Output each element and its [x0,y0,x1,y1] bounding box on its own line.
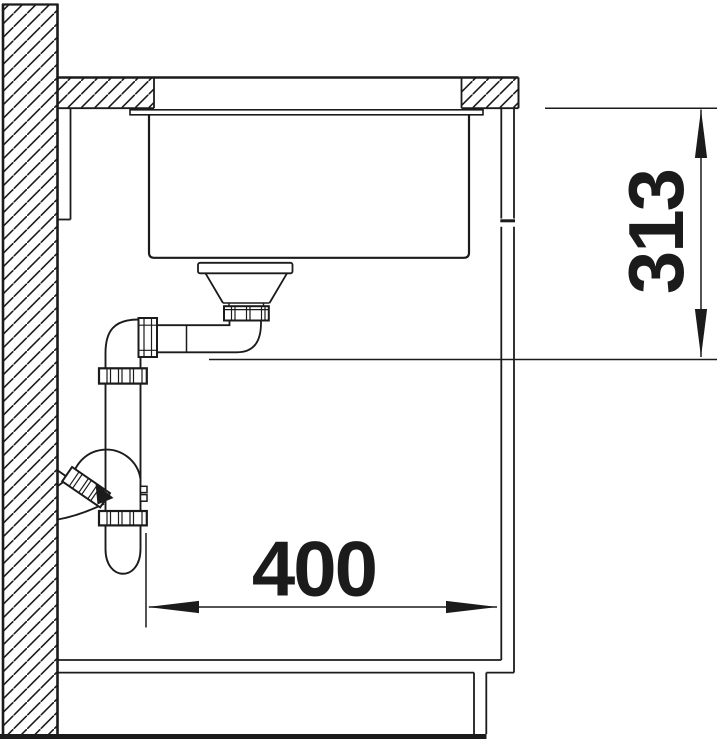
sink-flange [130,110,483,115]
plinth [474,673,486,734]
strainer-drain [198,263,293,321]
trap-u-bend [106,549,141,574]
arrow-down [695,309,707,357]
diagram-canvas: 313 400 [0,0,720,740]
arrow-right [446,601,498,613]
floor-line [0,734,487,739]
drain-tailpipe [157,321,261,353]
strainer-locknut [224,306,269,320]
cabinet-bottom-shelf [58,660,502,673]
cabinet-side-panel [486,108,515,672]
pipe-clip [141,486,148,501]
wall [2,4,59,736]
elbow-union-nut [139,318,158,357]
wall-ledger-strip [58,108,71,219]
vertical-drain-pipe [106,384,141,574]
drain-elbow [106,320,141,369]
sink-installation-diagram: 313 400 [0,0,720,740]
arrow-left [148,601,200,613]
union-cone [96,483,114,505]
pipe-nut-upper [99,368,147,383]
sink-bowl [149,115,469,258]
dimension-400-label: 400 [252,525,376,613]
worktop [58,78,519,109]
dimension-313-label: 313 [612,170,700,294]
arrow-up [695,110,707,159]
pipe-nut-lower [99,511,147,525]
